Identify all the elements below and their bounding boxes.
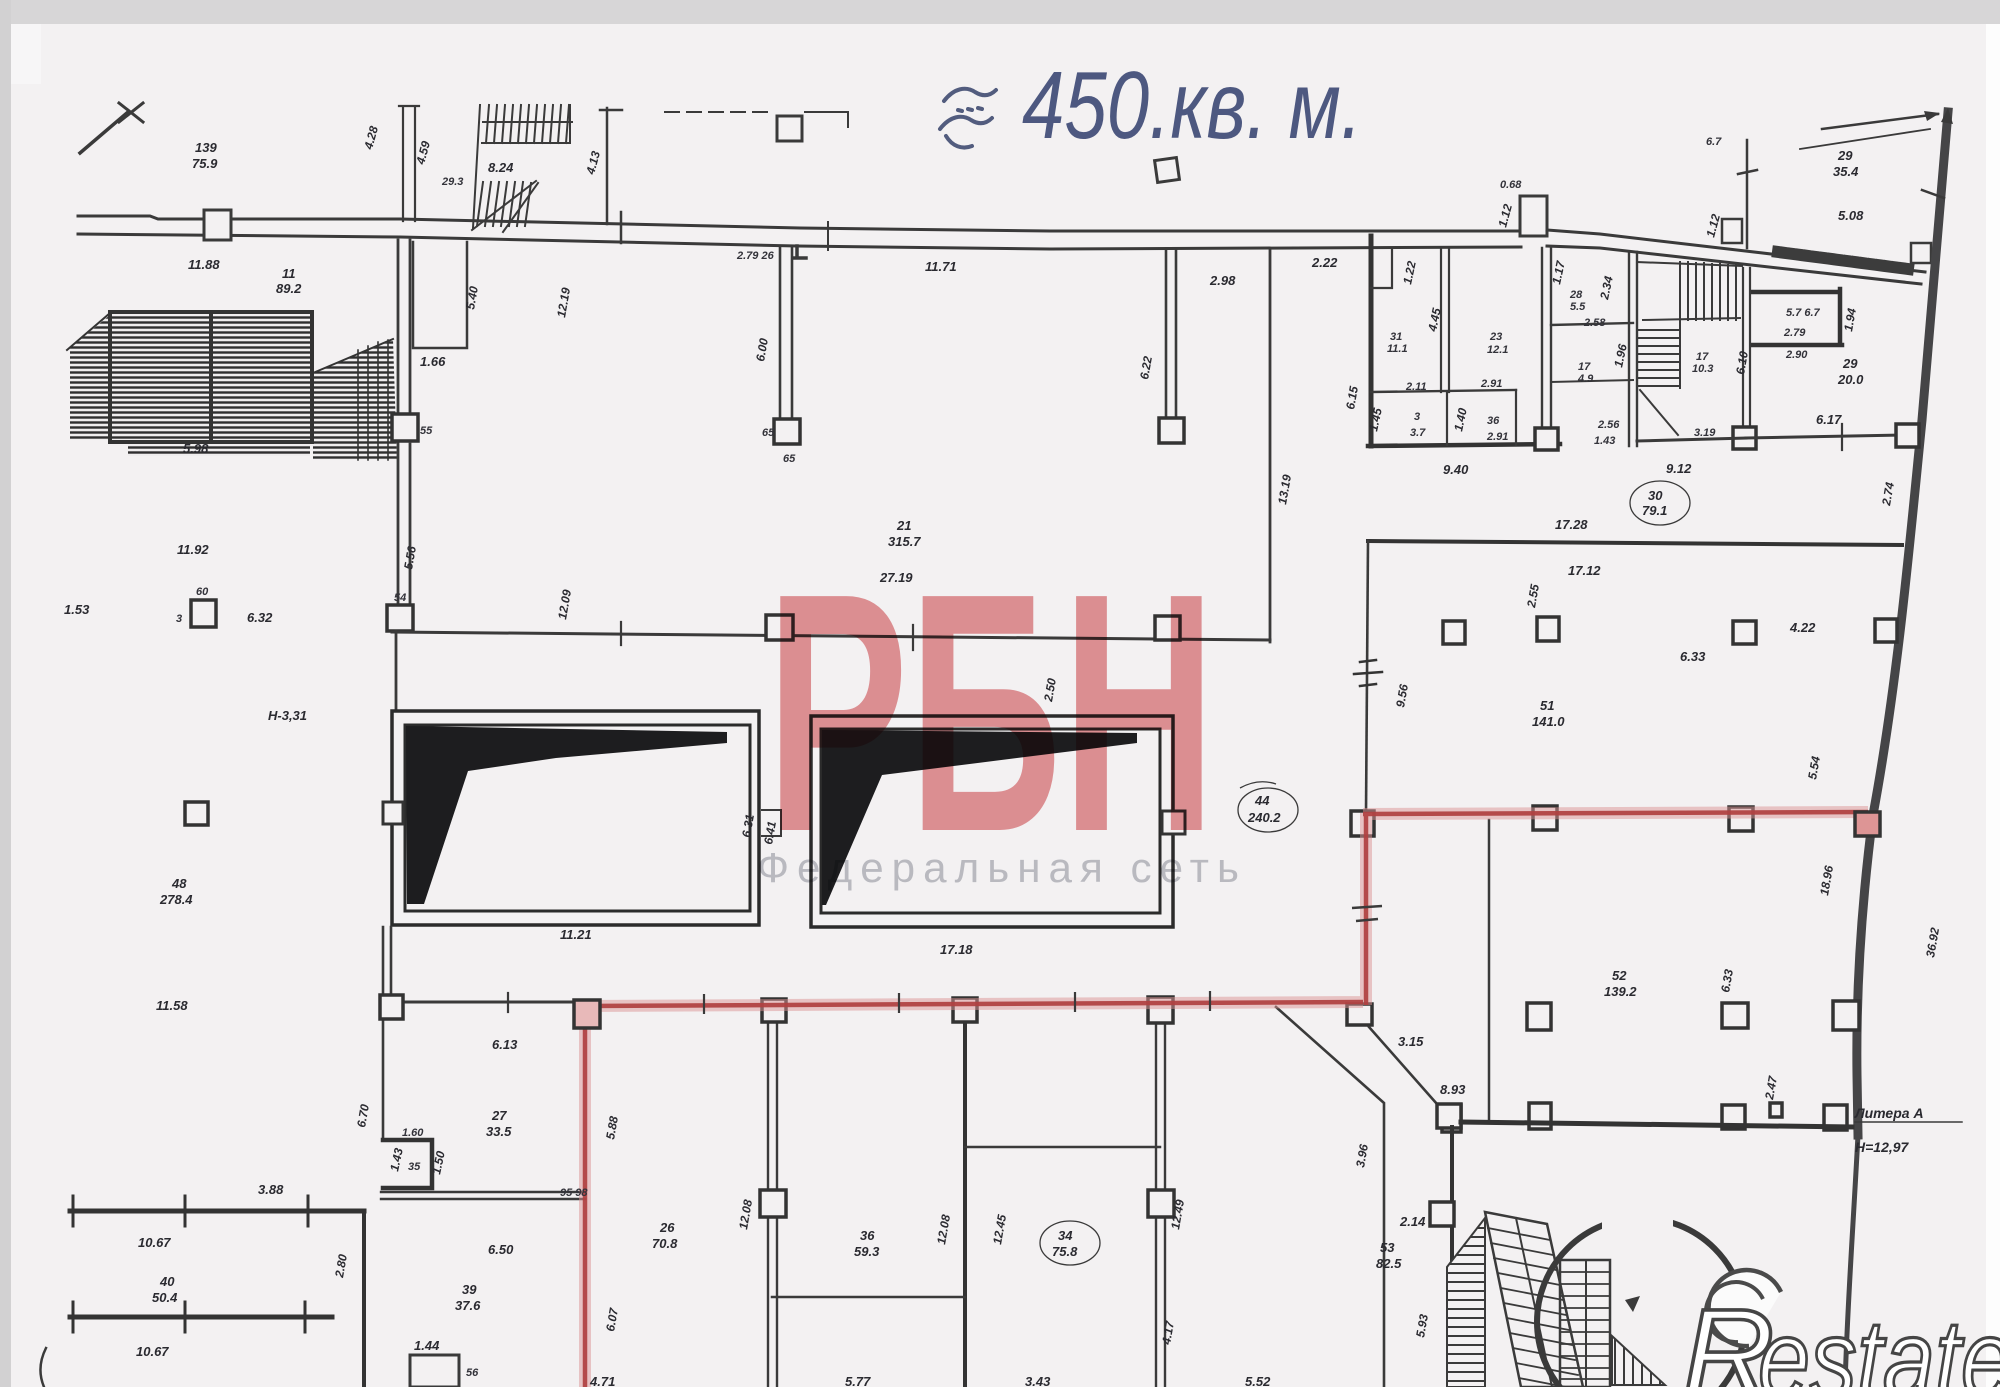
svg-text:17: 17 xyxy=(1578,361,1591,373)
svg-text:54: 54 xyxy=(394,592,406,604)
svg-text:2.79 26: 2.79 26 xyxy=(736,250,775,262)
svg-text:30: 30 xyxy=(1648,488,1663,503)
svg-text:2.58: 2.58 xyxy=(1583,317,1606,329)
svg-text:70.8: 70.8 xyxy=(652,1236,678,1251)
svg-text:Литера А: Литера А xyxy=(1854,1105,1924,1121)
svg-text:1.43: 1.43 xyxy=(1594,435,1615,447)
svg-text:2.91: 2.91 xyxy=(1486,431,1508,443)
svg-text:3: 3 xyxy=(176,613,182,625)
svg-text:139.2: 139.2 xyxy=(1604,984,1637,999)
svg-text:21: 21 xyxy=(896,518,911,533)
svg-text:3.19: 3.19 xyxy=(1694,427,1716,439)
svg-text:315.7: 315.7 xyxy=(888,534,921,549)
svg-text:3: 3 xyxy=(1414,411,1420,423)
svg-text:48: 48 xyxy=(171,876,187,891)
svg-text:11.21: 11.21 xyxy=(560,927,592,942)
svg-text:28: 28 xyxy=(1569,289,1583,301)
svg-text:1.53: 1.53 xyxy=(64,602,90,617)
svg-text:139: 139 xyxy=(195,140,217,155)
svg-text:65: 65 xyxy=(783,453,796,465)
svg-text:5.5: 5.5 xyxy=(1570,301,1586,313)
svg-text:Н=12,97: Н=12,97 xyxy=(1855,1139,1910,1155)
svg-text:11.92: 11.92 xyxy=(177,542,209,557)
svg-text:8.24: 8.24 xyxy=(488,160,514,175)
svg-text:6.13: 6.13 xyxy=(492,1037,518,1052)
svg-text:23: 23 xyxy=(1489,331,1502,343)
svg-text:8.93: 8.93 xyxy=(1440,1082,1466,1097)
svg-text:27.19: 27.19 xyxy=(879,570,913,585)
svg-text:17.18: 17.18 xyxy=(940,942,973,957)
svg-text:20.0: 20.0 xyxy=(1837,372,1864,387)
svg-text:1.66: 1.66 xyxy=(420,354,446,369)
svg-text:6.50: 6.50 xyxy=(488,1242,514,1257)
svg-text:82.5: 82.5 xyxy=(1376,1256,1402,1271)
svg-text:11.1: 11.1 xyxy=(1387,343,1408,355)
svg-text:4.22: 4.22 xyxy=(1789,620,1816,635)
svg-text:2.79: 2.79 xyxy=(1783,327,1806,339)
svg-text:6.17: 6.17 xyxy=(1816,412,1842,427)
svg-text:240.2: 240.2 xyxy=(1247,810,1281,825)
svg-text:11.71: 11.71 xyxy=(925,259,957,274)
svg-text:17.12: 17.12 xyxy=(1568,563,1601,578)
svg-text:5.98: 5.98 xyxy=(183,441,209,456)
svg-text:17: 17 xyxy=(1696,351,1709,363)
svg-text:3.7: 3.7 xyxy=(1410,427,1426,439)
svg-text:34: 34 xyxy=(1058,1228,1073,1243)
svg-text:10.67: 10.67 xyxy=(136,1344,169,1359)
svg-text:3.88: 3.88 xyxy=(258,1182,284,1197)
svg-text:44: 44 xyxy=(1254,793,1270,808)
svg-text:2.98: 2.98 xyxy=(1209,273,1236,288)
svg-text:75.9: 75.9 xyxy=(192,156,218,171)
svg-text:4.71: 4.71 xyxy=(589,1374,615,1387)
svg-text:59.3: 59.3 xyxy=(854,1244,880,1259)
svg-text:Н-3,31: Н-3,31 xyxy=(268,708,307,723)
svg-text:3.43: 3.43 xyxy=(1025,1374,1051,1387)
svg-text:2.91: 2.91 xyxy=(1480,378,1502,390)
svg-text:36: 36 xyxy=(860,1228,875,1243)
svg-text:2.90: 2.90 xyxy=(1785,349,1808,361)
svg-text:52: 52 xyxy=(1612,968,1627,983)
svg-text:12.1: 12.1 xyxy=(1487,344,1508,356)
svg-text:6.7: 6.7 xyxy=(1706,136,1722,148)
svg-text:141.0: 141.0 xyxy=(1532,714,1565,729)
svg-text:11.58: 11.58 xyxy=(156,998,188,1013)
svg-text:75.8: 75.8 xyxy=(1052,1244,1078,1259)
svg-text:2.22: 2.22 xyxy=(1311,255,1338,270)
svg-text:29: 29 xyxy=(1837,148,1853,163)
svg-text:5.77: 5.77 xyxy=(845,1374,871,1387)
svg-text:60: 60 xyxy=(196,586,209,598)
svg-text:5.08: 5.08 xyxy=(1838,208,1864,223)
svg-text:3.15: 3.15 xyxy=(1398,1034,1424,1049)
svg-text:5.52: 5.52 xyxy=(1245,1374,1271,1387)
svg-text:2.56: 2.56 xyxy=(1597,419,1620,431)
svg-text:Федеральная сеть: Федеральная сеть xyxy=(757,844,1247,891)
svg-text:79.1: 79.1 xyxy=(1642,503,1667,518)
svg-text:4.9: 4.9 xyxy=(1577,373,1594,385)
svg-text:40: 40 xyxy=(159,1274,175,1289)
svg-text:2.11: 2.11 xyxy=(1405,381,1427,393)
svg-text:51: 51 xyxy=(1540,698,1554,713)
svg-text:1.60: 1.60 xyxy=(402,1127,424,1139)
svg-text:10.67: 10.67 xyxy=(138,1235,171,1250)
svg-text:0.68: 0.68 xyxy=(1500,179,1522,191)
svg-text:9.12: 9.12 xyxy=(1666,461,1692,476)
svg-text:11: 11 xyxy=(282,266,296,281)
svg-text:1.44: 1.44 xyxy=(414,1338,440,1353)
svg-text:33.5: 33.5 xyxy=(486,1124,512,1139)
svg-text:2.14: 2.14 xyxy=(1399,1214,1426,1229)
svg-text:31: 31 xyxy=(1390,331,1402,343)
svg-text:6.33: 6.33 xyxy=(1680,649,1706,664)
svg-text:35.4: 35.4 xyxy=(1833,164,1859,179)
svg-text:50.4: 50.4 xyxy=(152,1290,178,1305)
svg-text:65: 65 xyxy=(762,427,775,439)
svg-text:278.4: 278.4 xyxy=(159,892,193,907)
svg-text:89.2: 89.2 xyxy=(276,281,302,296)
svg-text:37.6: 37.6 xyxy=(455,1298,481,1313)
svg-text:53: 53 xyxy=(1380,1240,1395,1255)
svg-text:36: 36 xyxy=(1487,415,1500,427)
svg-text:estate: estate xyxy=(1758,1297,2000,1387)
svg-text:55: 55 xyxy=(420,425,433,437)
svg-text:17.28: 17.28 xyxy=(1555,517,1588,532)
svg-text:6.32: 6.32 xyxy=(247,610,273,625)
svg-text:56: 56 xyxy=(466,1367,479,1379)
svg-text:39: 39 xyxy=(462,1282,477,1297)
svg-text:26: 26 xyxy=(659,1220,675,1235)
svg-text:11.88: 11.88 xyxy=(188,257,220,272)
svg-text:5.7 6.7: 5.7 6.7 xyxy=(1786,307,1821,319)
svg-text:35: 35 xyxy=(408,1161,421,1173)
svg-text:95 98: 95 98 xyxy=(560,1187,588,1199)
svg-text:10.3: 10.3 xyxy=(1692,363,1713,375)
svg-text:29.3: 29.3 xyxy=(441,176,463,188)
svg-text:450.кв. м.: 450.кв. м. xyxy=(1022,52,1362,159)
svg-text:9.40: 9.40 xyxy=(1443,462,1469,477)
svg-text:29: 29 xyxy=(1842,356,1858,371)
svg-text:27: 27 xyxy=(491,1108,507,1123)
